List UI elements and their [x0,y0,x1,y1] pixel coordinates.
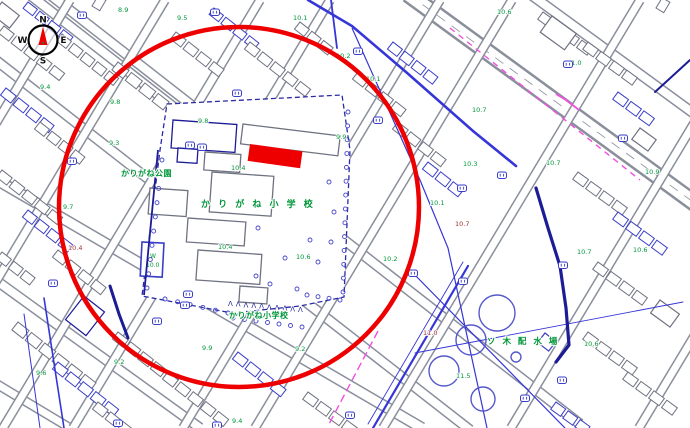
elevation-label: 9.8 [198,117,208,125]
elevation-label: 10.9 [645,168,659,176]
elevation-label-red: 10.4 [68,244,82,252]
building [295,81,311,96]
place-label: かりがね小学校 [229,310,289,320]
water-line [373,266,468,428]
elevation-label: 8.9 [118,6,128,14]
elevation-label: 9.9 [202,344,212,352]
building [623,372,639,387]
water-tank [429,356,459,386]
water-tank [479,295,515,331]
building [257,52,273,67]
building [175,382,191,397]
elevation-label: 10.6 [497,8,511,16]
building [92,62,107,76]
elevation-label: 9.7 [63,203,73,211]
elevation-label: 10.6 [296,253,310,261]
building [92,0,106,11]
lot-number-marker [114,420,123,427]
water-line [331,0,337,48]
lot-number-marker [559,262,568,269]
water-line [110,286,128,338]
lot-number-marker [49,280,58,287]
building [435,172,451,187]
compass-letter-s: S [40,57,46,67]
building [626,101,642,116]
compass-letter-n: N [39,16,47,26]
tree-symbol [277,322,281,326]
lot-number-marker [68,158,77,165]
building [423,70,438,84]
building [639,231,655,246]
building [68,43,83,57]
tree-symbol [289,324,293,328]
place-label: か り が ね 小 学 校 [201,198,315,210]
pool-label: 10.0 [146,262,160,269]
fence-triangle-symbol: Λ [290,305,295,313]
building [662,400,678,415]
building [613,212,629,227]
lot-number-marker [213,422,222,428]
elevation-label: 9.9 [336,133,346,141]
elevation-label: 9.3 [109,139,119,147]
elevation-label: 9.2 [114,358,124,366]
building [619,281,635,296]
elevation-label: 9.4 [232,417,242,425]
lot-number-marker [186,142,195,149]
lot-number-marker [181,302,190,309]
building [245,362,261,377]
fence-triangle-symbol: Λ [259,303,264,311]
building [609,351,625,366]
elevation-label: 10.1 [293,14,307,22]
elevation-label: 10.7 [472,106,486,114]
fence-triangle-symbol: Λ [244,301,249,309]
tree-symbol [346,110,350,114]
building [342,420,358,428]
building [49,65,65,80]
city-map: W10.0ΛΛΛΛΛΛΛΛΛΛ8.99.510.110.210.110.611.… [0,0,690,428]
elevation-label: 11.5 [456,372,470,380]
building [632,290,648,305]
building [586,181,602,196]
lot-number-marker [233,90,242,97]
fence-triangle-symbol: Λ [251,302,256,310]
tree-symbol [266,321,270,325]
pool-label: W [150,253,156,260]
tree-symbol [300,325,304,329]
lot-number-marker [558,377,567,384]
building [639,111,655,126]
building [573,172,589,187]
lot-number-marker [346,412,355,419]
building [183,42,199,57]
lot-number-marker [458,185,467,192]
elevation-label: 10.1 [430,199,444,207]
lot-number-marker [78,12,87,19]
compass-letter-e: E [60,36,66,46]
lot-number-marker [153,318,162,325]
elevation-label-red: 10.7 [455,220,469,228]
building [196,52,212,67]
lot-number-marker [619,135,628,142]
elevation-label: 10.2 [383,255,397,263]
building [329,411,345,426]
elevation-label: 9.4 [40,83,50,91]
lot-number-marker [211,9,220,16]
school-building [177,148,198,163]
lot-number-marker [521,395,530,402]
elevation-label: 9.2 [295,345,305,353]
building [0,2,19,28]
lot-number-marker [374,117,383,124]
building [599,191,615,206]
building [316,401,332,416]
place-label: ソ 木 配 水 場 [487,336,559,347]
elevation-label-red: 11.0 [423,329,437,337]
place-label: かりがね公園 [121,168,172,178]
lot-number-marker [459,278,468,285]
elevation-label: 10.4 [218,243,232,251]
water-tank [511,352,521,362]
fence-triangle-symbol: Λ [298,306,303,314]
lot-number-marker [184,291,193,298]
building [20,270,35,284]
building [652,240,668,255]
building [613,92,629,107]
elevation-label: 10.4 [231,164,245,172]
building [632,128,656,151]
building [232,352,248,367]
elevation-label: 10.3 [463,160,477,168]
street [639,0,690,428]
lot-number-marker [409,270,418,277]
elevation-label: 10.6 [584,340,598,348]
tree-symbol [338,298,342,302]
elevation-label: 9.5 [177,14,187,22]
building [422,162,438,177]
building [656,0,670,13]
map-viewport: W10.0ΛΛΛΛΛΛΛΛΛΛ8.99.510.110.210.110.611.… [0,0,690,428]
lot-number-marker [198,144,207,151]
fence-triangle-symbol: Λ [228,300,233,308]
building [303,392,319,407]
fence-triangle-symbol: Λ [236,301,241,309]
water-line [655,60,690,92]
building [387,42,402,56]
building [636,381,652,396]
building [430,152,446,167]
school-building [186,218,246,246]
compass-letter-w: W [18,36,28,46]
elevation-label: 9.8 [110,98,120,106]
lot-number-marker [498,172,507,179]
elevation-label: 10.7 [546,159,560,167]
building [0,26,14,41]
building [46,131,61,145]
lot-number-marker [564,61,573,68]
elevation-label: 10.6 [633,246,647,254]
school-building [196,250,262,284]
building [80,52,95,66]
water-line [368,262,463,424]
elevation-label: 10.7 [577,248,591,256]
elevation-label: 9.6 [36,369,46,377]
building [651,300,680,327]
building [26,108,42,123]
building [411,60,426,74]
lot-number-marker [354,48,363,55]
